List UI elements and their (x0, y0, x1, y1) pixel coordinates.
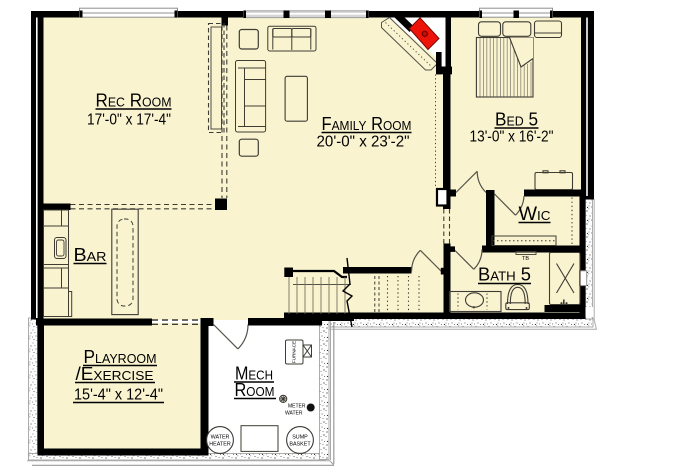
svg-text:Family Room: Family Room (322, 114, 412, 134)
svg-text:TB: TB (522, 256, 529, 262)
svg-text:Bar: Bar (74, 245, 107, 265)
svg-text:/Exercise: /Exercise (76, 364, 154, 384)
svg-text:BASKET: BASKET (289, 442, 311, 448)
svg-text:17'-0" x 17'-4": 17'-0" x 17'-4" (87, 112, 171, 129)
svg-text:Bath 5: Bath 5 (478, 265, 531, 285)
svg-text:METER: METER (288, 404, 306, 410)
svg-text:Bed 5: Bed 5 (495, 110, 538, 130)
svg-text:Rec Room: Rec Room (96, 91, 172, 111)
svg-text:SUMP: SUMP (292, 435, 308, 441)
svg-text:Room: Room (235, 380, 275, 400)
svg-text:WATER: WATER (285, 411, 303, 417)
svg-text:20'-0" x 23'-2": 20'-0" x 23'-2" (317, 134, 410, 151)
svg-text:13'-0" x 16'-2": 13'-0" x 16'-2" (470, 129, 554, 146)
svg-text:HEATER: HEATER (209, 442, 231, 448)
svg-text:15'-4" x 12'-4": 15'-4" x 12'-4" (74, 387, 163, 404)
svg-text:WATER: WATER (211, 435, 230, 441)
svg-text:FURNACE: FURNACE (292, 341, 297, 363)
